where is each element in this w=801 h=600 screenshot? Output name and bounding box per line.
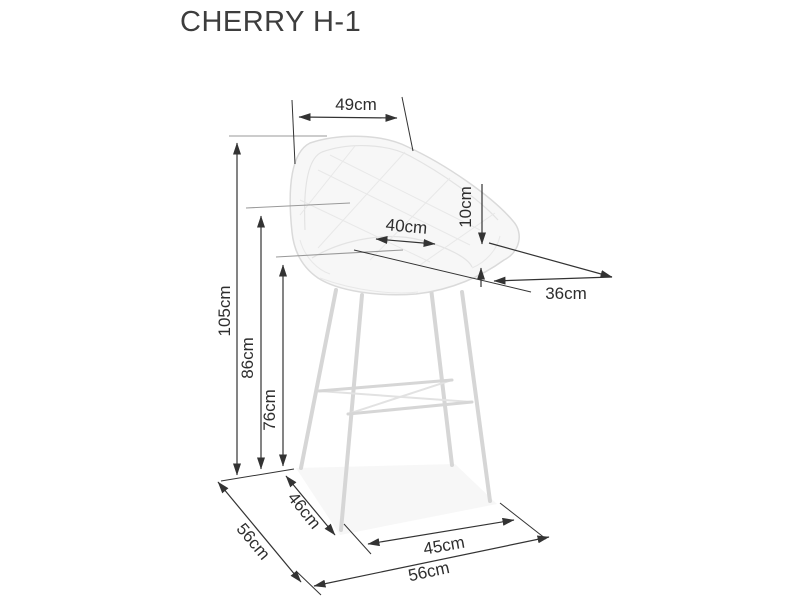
label-overall-height: 105cm (215, 285, 234, 336)
product-dimension-diagram: CHERRY H-1 49cm 105cm 86cm 76cm 40cm 10c… (0, 0, 801, 600)
label-backrest-width: 49cm (335, 95, 377, 114)
page-title: CHERRY H-1 (180, 6, 361, 38)
bar-stool-illustration (290, 136, 519, 535)
dim-backrest-width-arrow (299, 117, 397, 118)
diagram-canvas: CHERRY H-1 49cm 105cm 86cm 76cm 40cm 10c… (0, 0, 801, 600)
label-overall-width: 56cm (407, 558, 452, 585)
dim-seat-depth-arrow (494, 277, 612, 281)
stool-footrest (319, 380, 472, 414)
label-seat-depth: 36cm (545, 284, 587, 303)
label-front-leg-span: 45cm (422, 533, 466, 559)
label-backrest-thickness: 10cm (456, 186, 475, 228)
ext-backrest-width-left (292, 100, 295, 164)
label-back-height: 86cm (238, 337, 257, 379)
label-seat-height: 76cm (260, 389, 279, 431)
dim-seat-depth-upper-arrow (489, 243, 612, 277)
seat-shell (290, 136, 519, 294)
ext-floor-back-left (221, 469, 294, 481)
ext-backrest-width-right (402, 97, 413, 151)
ext-back-left-corner (296, 571, 321, 595)
label-seat-width: 40cm (385, 215, 428, 238)
